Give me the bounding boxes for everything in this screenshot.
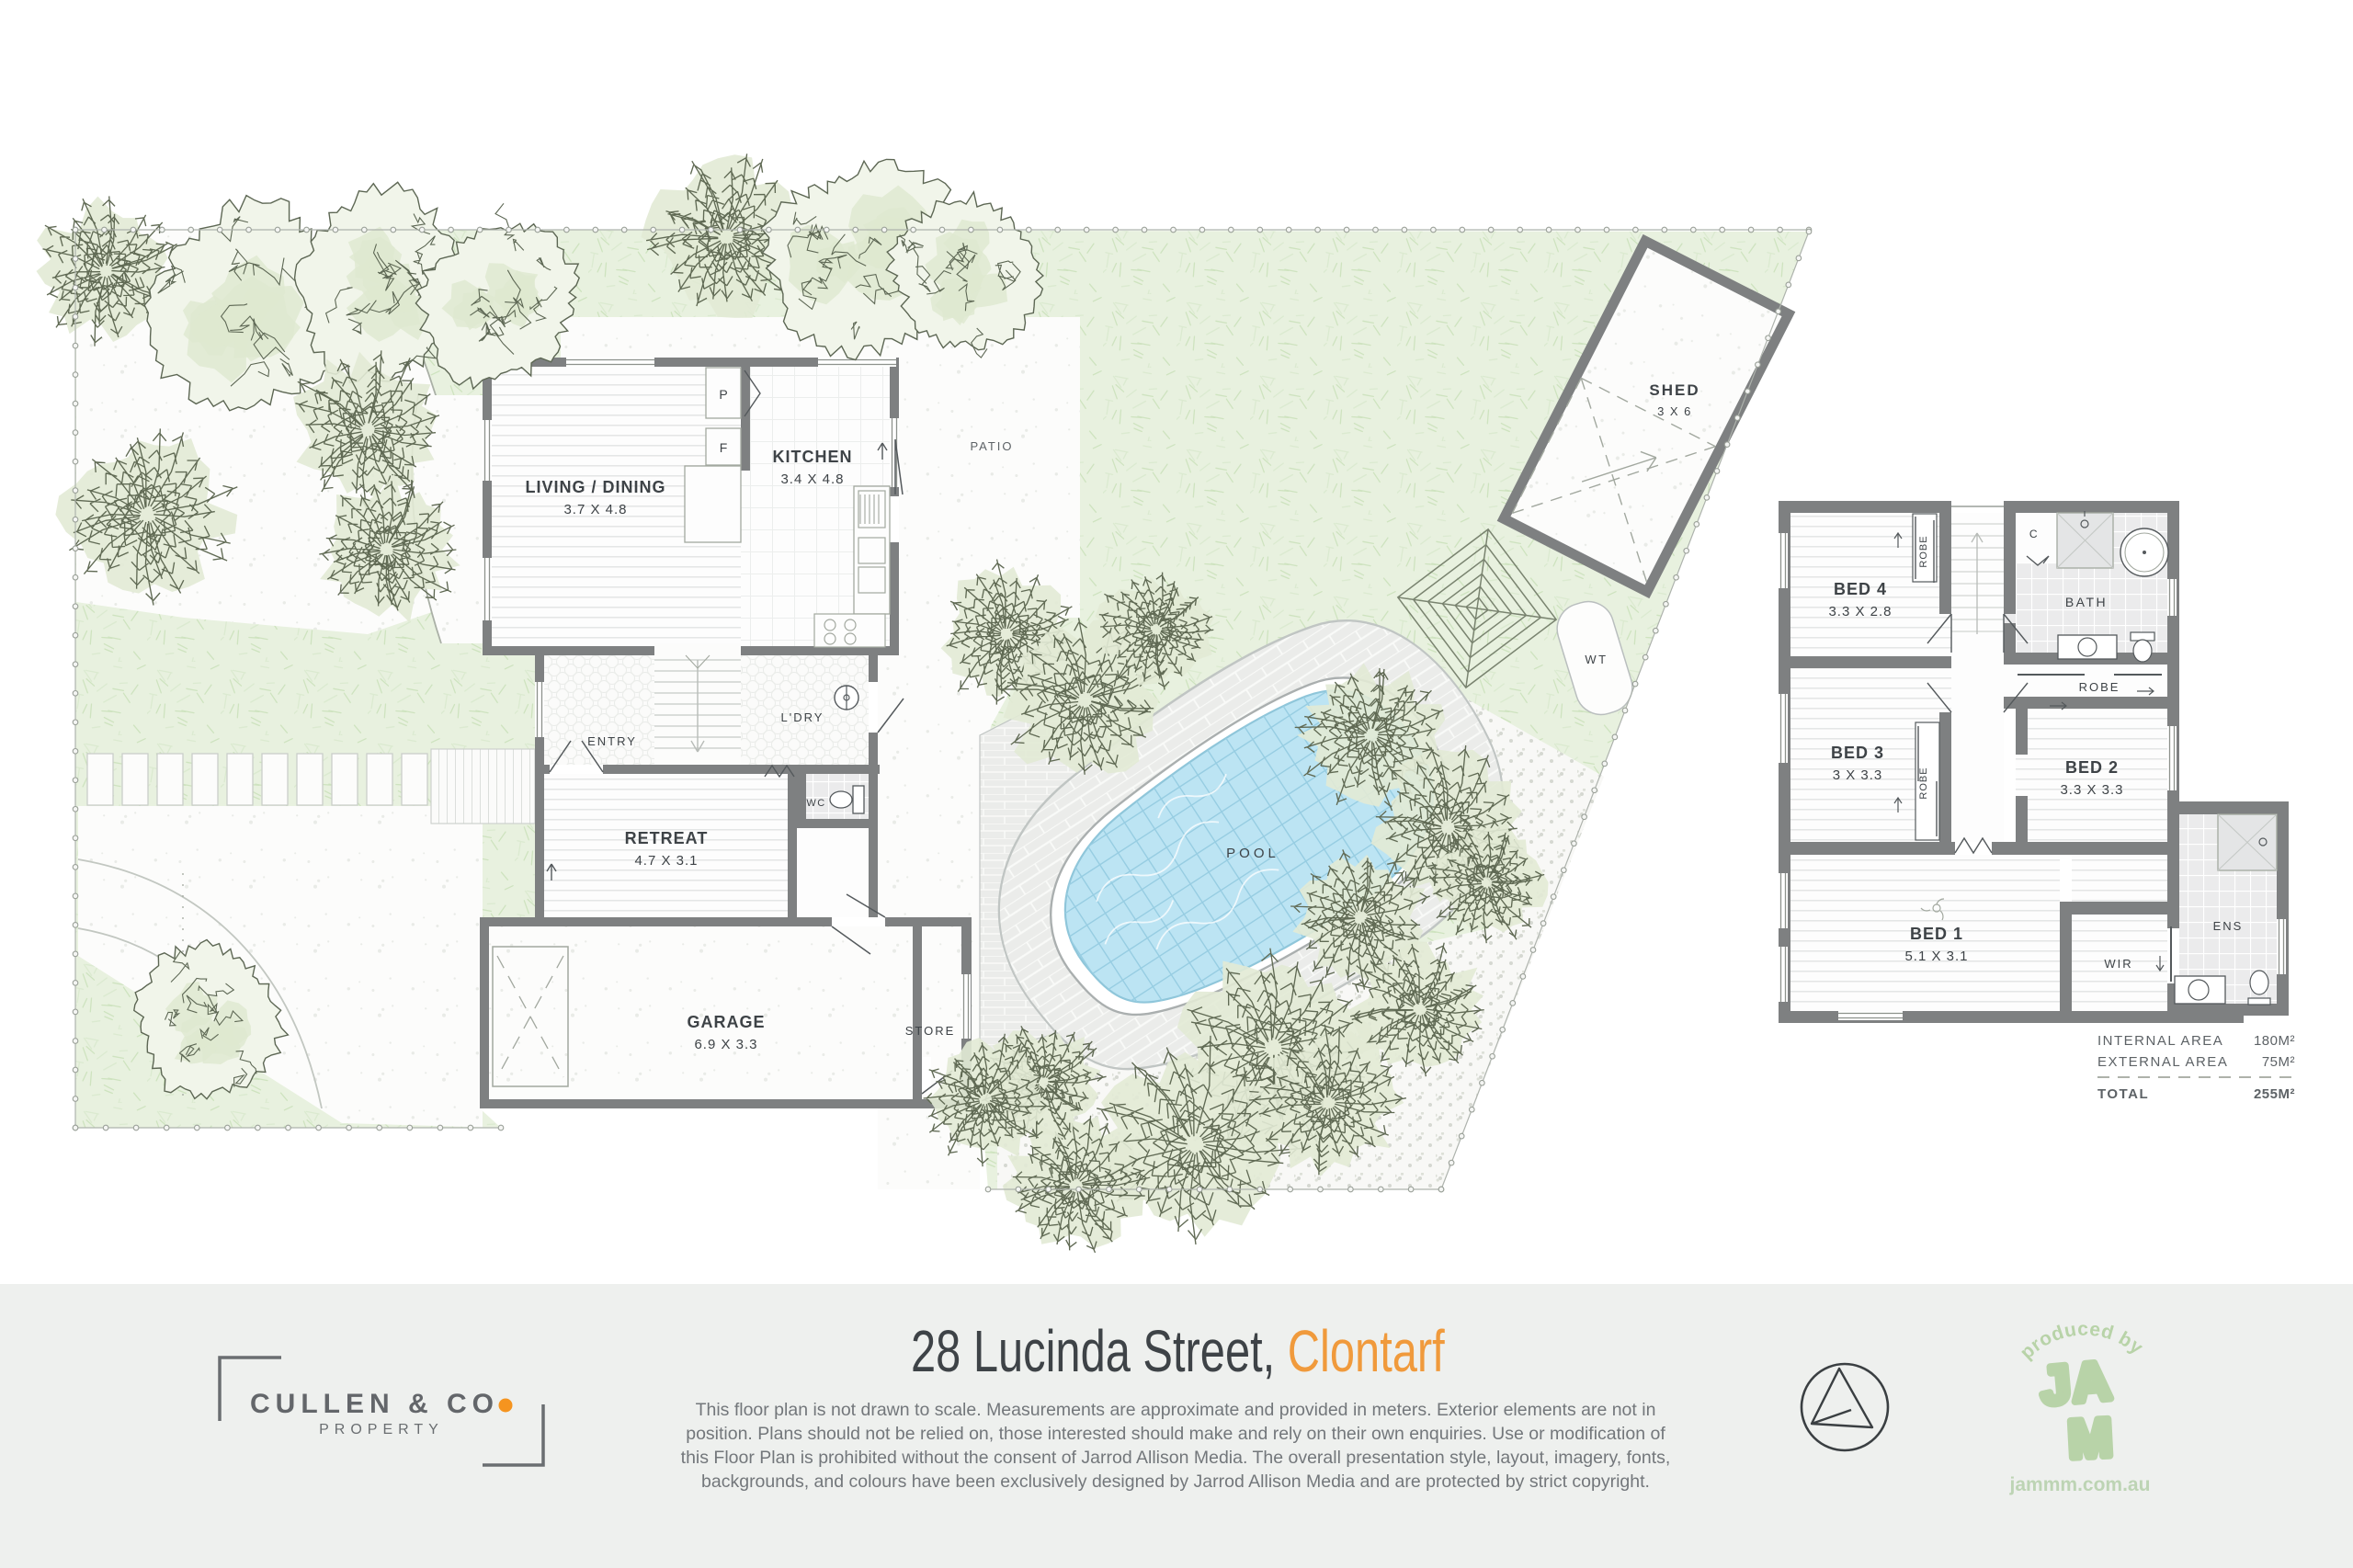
svg-text:JA: JA	[2038, 1350, 2115, 1416]
svg-text:F: F	[720, 440, 728, 455]
svg-text:LIVING / DINING: LIVING / DINING	[525, 478, 665, 496]
svg-text:BED 1: BED 1	[1910, 925, 1963, 943]
svg-text:TOTAL: TOTAL	[2097, 1086, 2149, 1102]
svg-text:ENS: ENS	[2213, 919, 2244, 933]
svg-text:INTERNAL AREA: INTERNAL AREA	[2097, 1033, 2223, 1049]
svg-text:WC: WC	[806, 798, 825, 809]
svg-text:EXTERNAL AREA: EXTERNAL AREA	[2097, 1054, 2228, 1070]
svg-text:75M²: 75M²	[2262, 1054, 2295, 1070]
svg-text:3.3 X 2.8: 3.3 X 2.8	[1828, 604, 1892, 619]
svg-text:POOL: POOL	[1226, 846, 1279, 861]
svg-text:ROBE: ROBE	[1918, 535, 1929, 567]
svg-text:BED 3: BED 3	[1831, 744, 1884, 762]
svg-text:P: P	[719, 387, 727, 402]
svg-text:WT: WT	[1585, 653, 1608, 666]
svg-text:3.7 X 4.8: 3.7 X 4.8	[563, 502, 627, 517]
svg-text:backgrounds, and colours have: backgrounds, and colours have been exclu…	[701, 1471, 1650, 1492]
svg-text:GARAGE: GARAGE	[687, 1013, 765, 1031]
svg-text:RETREAT: RETREAT	[625, 829, 709, 847]
svg-text:BED 4: BED 4	[1834, 580, 1887, 598]
svg-text:BED 2: BED 2	[2065, 758, 2119, 777]
svg-text:jammm.com.au: jammm.com.au	[2009, 1474, 2151, 1495]
svg-text:this Floor Plan is prohibited: this Floor Plan is prohibited without th…	[681, 1448, 1671, 1468]
svg-text:255M²: 255M²	[2254, 1086, 2295, 1102]
svg-text:5.1 X 3.1: 5.1 X 3.1	[1904, 949, 1968, 964]
svg-text:WIR: WIR	[2104, 957, 2132, 971]
svg-text:4.7 X 3.1: 4.7 X 3.1	[634, 853, 698, 869]
svg-text:PATIO: PATIO	[970, 439, 1013, 453]
svg-text:KITCHEN: KITCHEN	[773, 448, 853, 466]
svg-text:6.9 X 3.3: 6.9 X 3.3	[694, 1037, 757, 1052]
svg-text:180M²: 180M²	[2254, 1033, 2295, 1049]
svg-text:M: M	[2066, 1408, 2114, 1470]
svg-text:ROBE: ROBE	[2079, 680, 2120, 694]
svg-text:This floor plan is not drawn t: This floor plan is not drawn to scale. M…	[696, 1400, 1656, 1420]
svg-text:CULLEN & CO: CULLEN & CO	[250, 1389, 499, 1419]
svg-text:3.4 X 4.8: 3.4 X 4.8	[780, 472, 844, 487]
svg-text:BATH: BATH	[2065, 595, 2108, 609]
svg-text:3 X 3.3: 3 X 3.3	[1833, 767, 1883, 783]
svg-text:L'DRY: L'DRY	[781, 710, 824, 724]
svg-text:PROPERTY: PROPERTY	[319, 1422, 444, 1437]
svg-text:SHED: SHED	[1649, 381, 1699, 399]
svg-text:3.3 X 3.3: 3.3 X 3.3	[2060, 782, 2123, 798]
svg-text:STORE: STORE	[905, 1024, 956, 1038]
svg-text:ROBE: ROBE	[1918, 767, 1929, 799]
svg-text:28 Lucinda Street, Clontarf: 28 Lucinda Street, Clontarf	[911, 1319, 1445, 1385]
svg-text:position. Plans should not be: position. Plans should not be relied on,…	[686, 1424, 1665, 1444]
svg-text:ENTRY: ENTRY	[587, 734, 637, 748]
svg-text:C: C	[2029, 528, 2039, 540]
svg-text:3 X 6: 3 X 6	[1657, 404, 1692, 418]
